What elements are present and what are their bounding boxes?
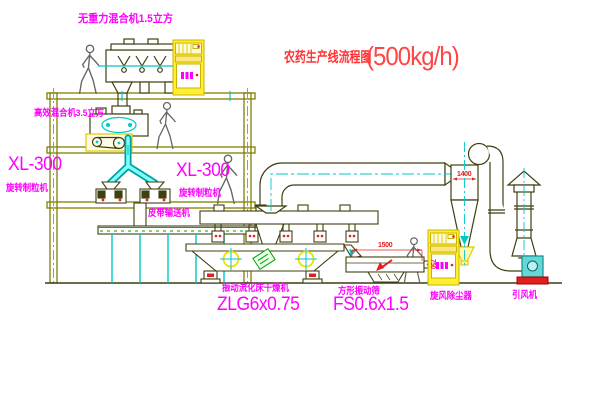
dim-cyclone-width: 1400 <box>457 171 471 178</box>
label-belt-conveyor: 皮带输送机 <box>148 209 190 219</box>
dim-sieve-height: 750 <box>429 259 436 269</box>
granulator-left <box>96 182 126 203</box>
dim-sieve-length: 1500 <box>378 242 392 249</box>
label-granulator-left-name: 旋转制粒机 <box>6 184 48 194</box>
exhaust-duct <box>256 163 462 213</box>
diagram-title-capacity: (500kg/h) <box>366 43 459 69</box>
label-granulator-right-model: XL-300 <box>176 161 230 180</box>
label-granulator-right-name: 旋转制粒机 <box>179 189 221 199</box>
person-second-floor <box>157 103 176 150</box>
induced-draft-fan <box>517 256 548 284</box>
label-sieve-model: FS0.6x1.5 <box>333 295 409 314</box>
granulator-discharge-duct <box>134 203 146 226</box>
label-high-efficiency-mixer: 高效混合机3.5立方 <box>34 109 104 119</box>
label-dryer-model: ZLG6x0.75 <box>217 295 299 314</box>
cyclone-separator <box>451 142 522 271</box>
control-cabinet-top <box>173 40 204 95</box>
label-fan: 引风机 <box>512 291 537 301</box>
flow-diagram-canvas: 无重力混合机1.5立方 农药生产线流程图 (500kg/h) 高效混合机3.5立… <box>0 0 600 403</box>
label-dryer-name: 振动流化床干燥机 <box>222 284 289 294</box>
person-top-floor <box>80 45 99 94</box>
control-cabinet-ground <box>428 230 459 285</box>
label-cyclone: 旋风除尘器 <box>430 292 472 302</box>
diagram-title: 农药生产线流程图 <box>284 50 371 64</box>
label-granulator-left-model: XL-300 <box>8 155 62 174</box>
granulator-right <box>140 182 170 203</box>
label-gravity-free-mixer: 无重力混合机1.5立方 <box>78 14 173 25</box>
dryer-feet <box>201 271 322 283</box>
